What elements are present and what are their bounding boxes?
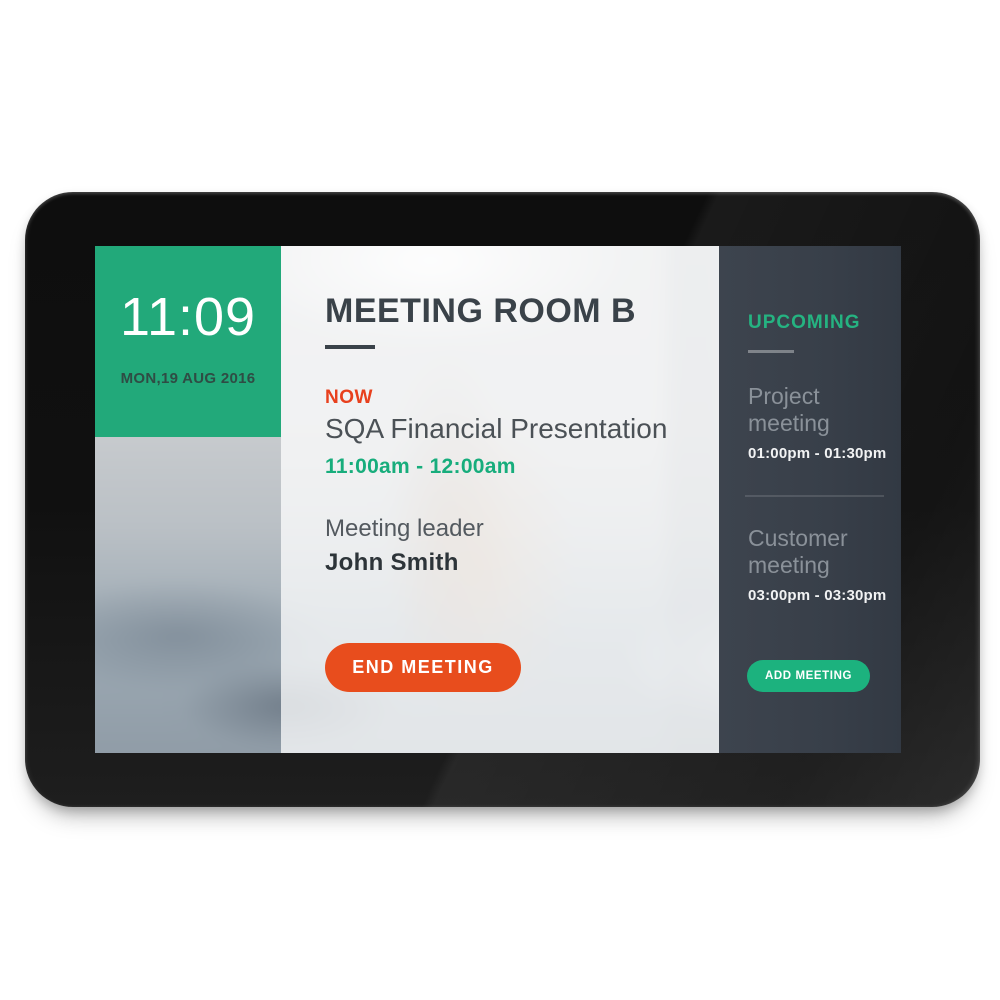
upcoming-meeting-time: 03:00pm - 03:30pm [748,587,901,605]
left-column: 11:09 MON,19 AUG 2016 [95,246,281,753]
clock-panel: 11:09 MON,19 AUG 2016 [95,246,281,437]
tablet-frame: 11:09 MON,19 AUG 2016 MEETING ROOM B NOW… [25,192,980,807]
upcoming-header: UPCOMING [748,312,901,334]
current-meeting-title: SQA Financial Presentation [325,412,719,446]
upcoming-meeting-title: Customer meeting [748,525,873,579]
current-meeting-time: 11:00am - 12:00am [325,454,719,480]
room-title: MEETING ROOM B [325,292,719,331]
main-panel: MEETING ROOM B NOW SQA Financial Present… [281,246,719,753]
clock-time: 11:09 [120,290,256,344]
screen: 11:09 MON,19 AUG 2016 MEETING ROOM B NOW… [95,246,901,753]
now-status-label: NOW [325,387,719,409]
meeting-leader-label: Meeting leader [325,514,719,544]
upcoming-sidebar: UPCOMING Project meeting 01:00pm - 01:30… [719,246,901,753]
clock-date: MON,19 AUG 2016 [121,370,256,387]
add-meeting-button[interactable]: ADD MEETING [747,660,870,692]
meeting-leader-name: John Smith [325,548,719,578]
upcoming-underline [748,350,794,353]
upcoming-divider [745,495,884,497]
page-background: 11:09 MON,19 AUG 2016 MEETING ROOM B NOW… [0,0,1000,1000]
title-underline [325,345,375,349]
upcoming-meeting-item: Customer meeting 03:00pm - 03:30pm [748,525,901,605]
end-meeting-button[interactable]: END MEETING [325,643,521,692]
upcoming-meeting-time: 01:00pm - 01:30pm [748,445,901,463]
upcoming-meeting-title: Project meeting [748,383,873,437]
upcoming-meeting-item: Project meeting 01:00pm - 01:30pm [748,383,901,463]
